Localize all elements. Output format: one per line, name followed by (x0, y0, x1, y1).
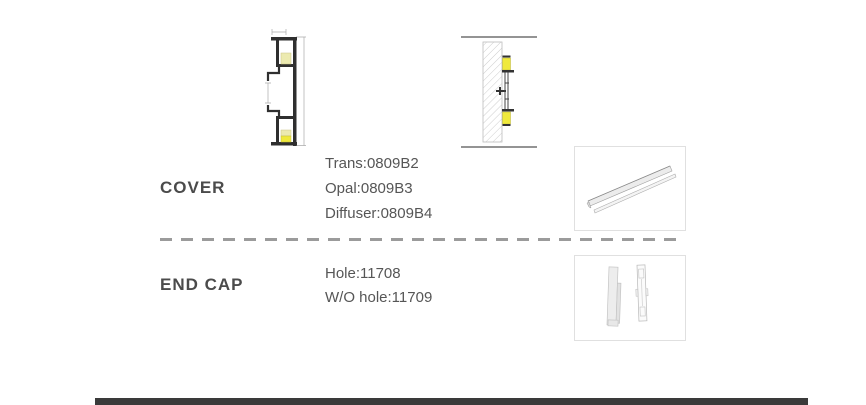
profile-cross-section-svg (253, 18, 325, 156)
cover-spec-diffuser: Diffuser:0809B4 (325, 201, 432, 226)
cover-spec-opal: Opal:0809B3 (325, 176, 432, 201)
cover-render-svg (575, 147, 685, 230)
cover-spec-list: Trans:0809B2 Opal:0809B3 Diffuser:0809B4 (325, 151, 432, 226)
profile-cross-section-drawing (253, 18, 325, 156)
led-strip-bottom-pale (281, 130, 291, 136)
cover-section-label: COVER (160, 178, 225, 198)
end-cap-outline (635, 265, 649, 321)
mounting-hooks (268, 67, 279, 117)
footer-bar (95, 398, 808, 405)
end-cap-render-svg (575, 256, 685, 340)
end-cap-solid (607, 267, 622, 326)
wall-mount-installation-drawing (458, 28, 540, 153)
end-cap-spec-list: Hole:11708 W/O hole:11709 (325, 262, 432, 310)
end-cap-product-image (574, 255, 686, 341)
end-cap-spec-hole: Hole:11708 (325, 262, 432, 286)
cover-spec-trans: Trans:0809B2 (325, 151, 432, 176)
led-strip-top (281, 53, 291, 64)
led-strip-bottom-bright (281, 136, 291, 142)
wall-installation-svg (458, 28, 540, 153)
led-glow-bottom (503, 112, 511, 124)
led-glow-top (503, 58, 511, 70)
cover-product-image (574, 146, 686, 231)
cover-strip-back (588, 166, 672, 206)
dimension-lines (265, 29, 306, 146)
section-divider (160, 238, 684, 241)
end-cap-spec-wo-hole: W/O hole:11709 (325, 286, 432, 310)
end-cap-section-label: END CAP (160, 275, 244, 295)
